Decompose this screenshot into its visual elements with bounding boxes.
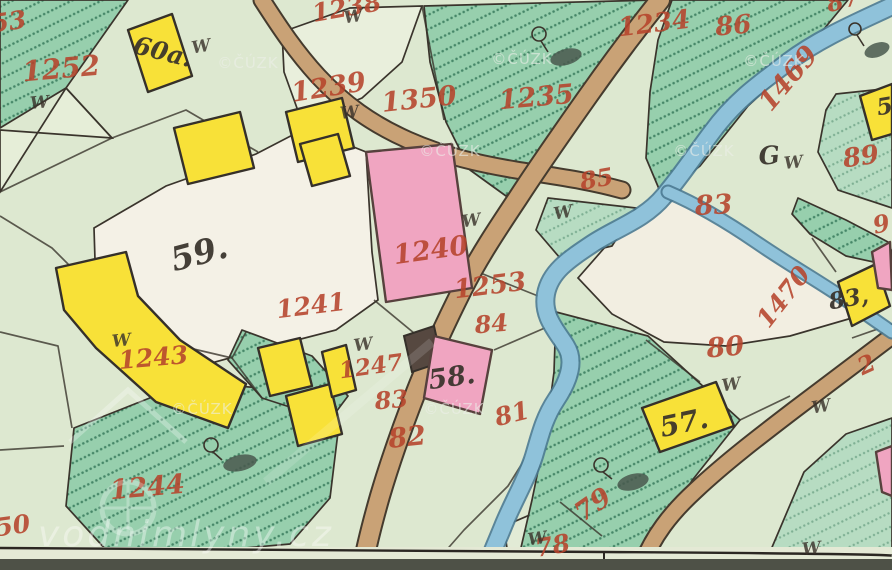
cuzk-watermark: ©ČÚZK — [673, 141, 734, 160]
parcel-number: 82 — [386, 420, 428, 455]
parcel-number: 85 — [577, 161, 616, 196]
parcel-number: 89 — [840, 140, 881, 175]
parcel-number: 86 — [713, 10, 753, 43]
house-number: 58. — [426, 359, 477, 396]
parcel-number: 1235 — [497, 79, 575, 116]
parcel-number: 50 — [0, 509, 33, 543]
cuzk-watermark: ©ČÚZK — [743, 51, 804, 70]
brand-watermark-text: vodnimlyny.cz — [38, 514, 334, 555]
parcel-number: 84 — [472, 308, 509, 340]
cuzk-watermark: ©ČÚZK — [217, 53, 278, 72]
parcel-number: 53 — [0, 5, 28, 39]
house-number: G — [757, 140, 781, 171]
cuzk-watermark: ©ČÚZK — [491, 49, 552, 68]
parcel-number: 1252 — [21, 49, 102, 89]
parcel-number: 83 — [693, 189, 733, 222]
cadastral-map-canvas[interactable]: 5312521238123913501235123486871469858389… — [0, 0, 892, 570]
cuzk-watermark: ©ČÚZK — [423, 399, 484, 418]
cuzk-watermark: ©ČÚZK — [419, 141, 480, 160]
meadow-symbol: W — [29, 92, 52, 114]
parcel-number: 80 — [704, 330, 745, 364]
cuzk-watermark: ©ČÚZK — [171, 399, 232, 418]
map-viewport[interactable]: 5312521238123913501235123486871469858389… — [0, 0, 892, 570]
